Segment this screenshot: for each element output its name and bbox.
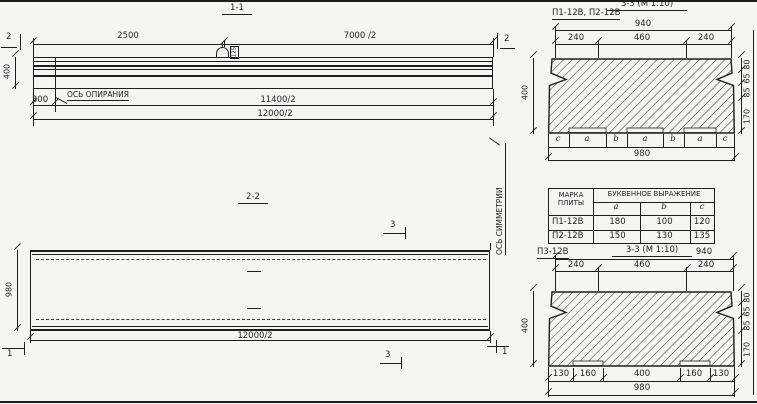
- table-cell: 135: [691, 232, 713, 241]
- beam-line: [34, 69, 492, 70]
- dim-460: 460: [628, 261, 656, 270]
- dim-line-height: [533, 58, 534, 134]
- dim-tick: [12, 50, 19, 57]
- dim-tick: [14, 243, 21, 250]
- letter-a: а: [638, 135, 652, 144]
- section-marker-line: [496, 340, 497, 353]
- section-marker-2-left: 2: [6, 33, 11, 42]
- dim-160: 160: [574, 370, 602, 379]
- beam-line: [34, 61, 492, 62]
- section-3-3-title: 3-3 (М 1:10): [612, 246, 692, 257]
- section-marker-line: [401, 357, 402, 369]
- dim-460: 460: [628, 34, 656, 43]
- dim-170: 170: [743, 340, 752, 360]
- table-cell: 180: [605, 218, 630, 227]
- section-marker-line: [24, 342, 25, 355]
- dim-400: 400: [628, 370, 656, 379]
- center-mark: [247, 271, 261, 272]
- cell-line: [569, 134, 570, 147]
- dim-line-segments: [555, 44, 731, 45]
- leader-line: [56, 97, 68, 104]
- table-header-expr: БУКВЕННОЕ ВЫРАЖЕНИЕ: [595, 191, 713, 199]
- cell-line: [716, 134, 717, 147]
- dim-line-940: [555, 30, 731, 31]
- dim-tick: [738, 360, 745, 367]
- table-row-mark: П2-12В: [552, 232, 584, 241]
- dim-line-bottom: [548, 381, 735, 382]
- dim-130: 130: [549, 370, 573, 379]
- letter-a: а: [693, 135, 707, 144]
- section-marker-line: [2, 348, 24, 349]
- plan-line: [32, 326, 488, 327]
- section-marker-line: [383, 233, 405, 234]
- dim-tick: [530, 284, 537, 291]
- ext-line: [598, 267, 599, 291]
- dim-12000-2: 12000/2: [230, 332, 280, 341]
- cell-line: [663, 134, 664, 147]
- letter-b: b: [666, 135, 680, 144]
- table-subheader-b: b: [658, 203, 670, 212]
- cell-line: [627, 134, 628, 147]
- letter-c: с: [551, 135, 565, 144]
- section-marker-3-top: 3: [390, 221, 395, 230]
- symmetry-axis-label: ОСЬ СИММЕТРИИ: [496, 143, 506, 255]
- center-mark: [247, 308, 261, 309]
- section-marker-1-right: 1: [502, 348, 507, 357]
- section-marker-line: [405, 227, 406, 239]
- table-cell: 120: [691, 218, 713, 227]
- plan-hidden-line: [36, 259, 486, 260]
- section-marker-1-left: 1: [7, 350, 12, 359]
- letter-b: b: [609, 135, 623, 144]
- dim-line-width: [17, 250, 18, 331]
- loop-label: 125: [232, 44, 238, 61]
- dim-line-980: [548, 395, 735, 396]
- table-line: [593, 188, 594, 244]
- dim-240: 240: [694, 261, 718, 270]
- sheet-border-bottom: [0, 401, 757, 403]
- ext-line: [493, 38, 494, 57]
- letter-c: с: [718, 135, 732, 144]
- dim-400: 400: [521, 316, 530, 336]
- symmetry-axis-line: [490, 243, 491, 250]
- table-line: [640, 202, 641, 244]
- dim-240: 240: [564, 261, 588, 270]
- dim-12000-2: 12000/2: [250, 110, 300, 119]
- lifting-loop-tip: [222, 42, 223, 47]
- plan-line: [32, 254, 488, 255]
- ext-line: [33, 38, 34, 57]
- dim-7000-2: 7000 /2: [330, 32, 390, 41]
- table-cell: 130: [652, 232, 677, 241]
- dim-940: 940: [629, 20, 657, 29]
- ext-line: [731, 26, 732, 58]
- table-line: [548, 215, 715, 216]
- section-marker-line: [1, 47, 17, 48]
- ext-line: [33, 89, 34, 126]
- dim-line-top: [33, 44, 493, 45]
- dim-240: 240: [694, 34, 718, 43]
- section-2-2-title: 2-2: [238, 193, 268, 204]
- dim-400: 400: [521, 83, 530, 103]
- dim-line-segments: [555, 271, 733, 272]
- dim-160: 160: [681, 370, 707, 379]
- section-marker-line: [20, 34, 21, 50]
- leader-line: [489, 137, 500, 145]
- dim-980: 980: [5, 280, 14, 300]
- dim-85: 85: [743, 316, 752, 336]
- dim-980: 980: [628, 384, 656, 393]
- dim-tick: [530, 127, 537, 134]
- cell-line: [606, 134, 607, 147]
- letter-a: а: [580, 135, 594, 144]
- section-marker-line: [500, 48, 515, 49]
- section-marker-3-bottom: 3: [385, 351, 390, 360]
- dim-240: 240: [564, 34, 588, 43]
- table-cell: 150: [605, 232, 630, 241]
- ext-line: [493, 89, 494, 126]
- lifting-loop: [216, 47, 229, 57]
- table-row-mark: П1-12В: [552, 218, 584, 227]
- support-axis-label: ОСЬ ОПИРАНИЯ: [67, 91, 129, 101]
- section-marker-line: [497, 33, 498, 49]
- dim-130: 130: [709, 370, 733, 379]
- ext-line: [686, 40, 687, 58]
- ext-line: [224, 40, 225, 47]
- dim-line-height: [15, 57, 16, 89]
- strip-line: [548, 147, 735, 148]
- ext-line: [555, 26, 556, 58]
- dim-2500: 2500: [98, 32, 158, 41]
- drawing-sheet: 1-1 2500 7000 /2 2 2 125 400 300 ОСЬ ОПИ…: [0, 0, 757, 404]
- ext-line: [686, 267, 687, 291]
- section-3-3-bottom-body: [548, 291, 735, 367]
- dim-line-980: [548, 160, 735, 161]
- ext-line: [733, 255, 734, 291]
- plan-hidden-line: [36, 319, 486, 320]
- dim-line-height: [533, 291, 534, 367]
- table-subheader-c: с: [696, 203, 708, 212]
- cell-line: [684, 134, 685, 147]
- dim-940: 940: [690, 248, 718, 257]
- section-marker-2-right: 2: [504, 35, 509, 44]
- dim-tick: [14, 324, 21, 331]
- dim-tick: [530, 360, 537, 367]
- ext-line: [555, 255, 556, 291]
- dim-tick: [530, 51, 537, 58]
- sheet-border-right: [753, 30, 754, 395]
- section-3-3-top-body: [548, 58, 735, 134]
- dim-tick: [12, 82, 19, 89]
- beam-line: [34, 65, 492, 67]
- dim-11400-2: 11400/2: [253, 96, 303, 105]
- dim-85: 85: [743, 83, 752, 103]
- dim-170: 170: [743, 107, 752, 127]
- table-header-mark: МАРКА ПЛИТЫ: [550, 192, 592, 207]
- support-axis-line: [55, 57, 56, 112]
- beam-line: [34, 75, 492, 77]
- table-cell: 100: [652, 218, 677, 227]
- ext-line: [598, 40, 599, 58]
- table-subheader-a: а: [610, 203, 622, 212]
- dim-tick: [738, 127, 745, 134]
- dim-400: 400: [3, 62, 12, 82]
- section-1-1-title: 1-1: [222, 4, 252, 15]
- section-3-3-title: 3-3 (М 1:10): [607, 0, 687, 11]
- dim-300: 300: [28, 96, 52, 105]
- section-marker-line: [380, 363, 402, 364]
- dim-980: 980: [628, 150, 656, 159]
